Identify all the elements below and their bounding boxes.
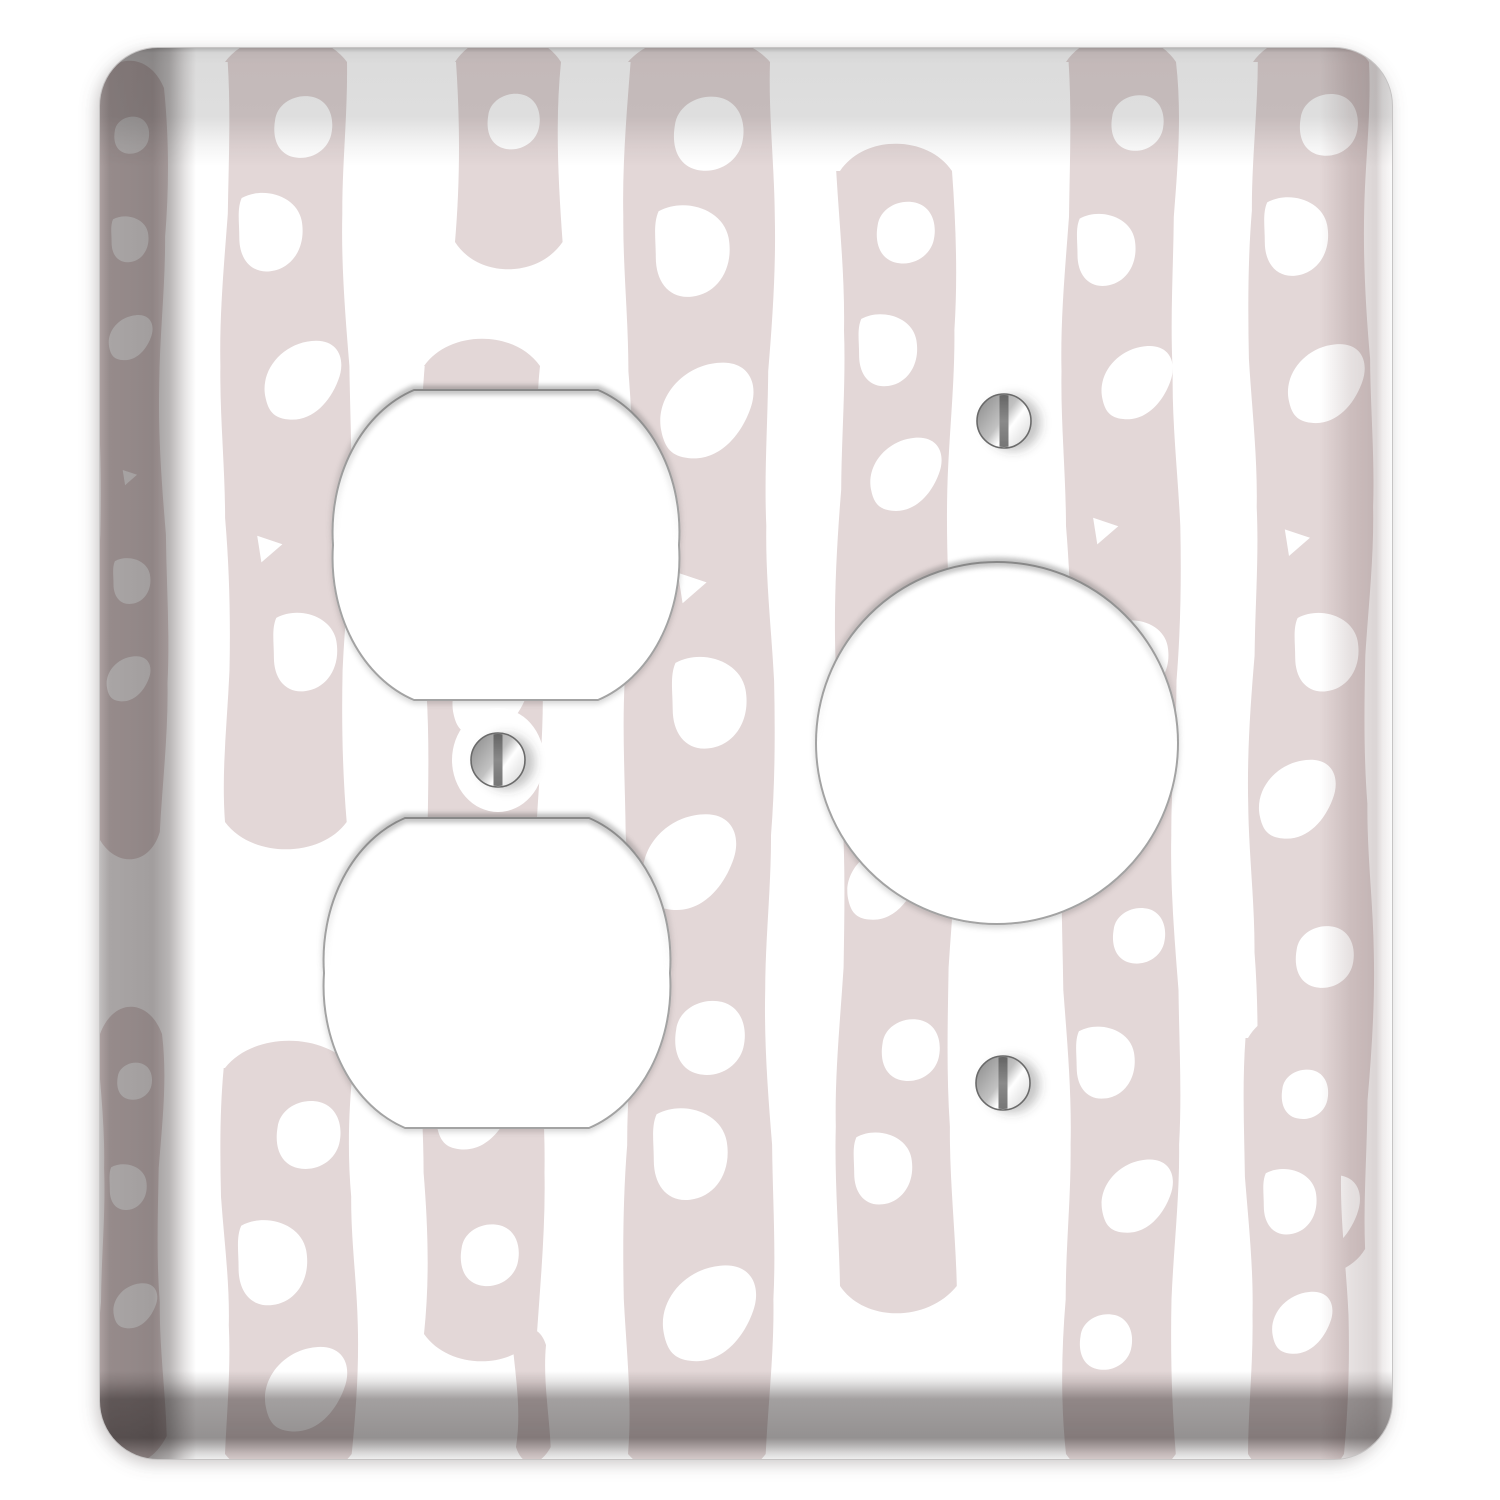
round-opening [816,562,1178,924]
duplex-opening [324,818,671,1128]
bevel-bottom-shading [100,1371,1392,1459]
product-photo [0,0,1500,1500]
pattern-stripe [623,35,775,1482]
screw-slot [1000,394,1009,448]
screw-slot [999,1056,1008,1110]
bevel-right-shading [1320,48,1392,1459]
wallplate [91,35,1392,1482]
screw-head [471,733,525,787]
wallplate-image [0,0,1500,1500]
plate-pattern-layer [91,35,1392,1482]
screw-head [977,394,1031,448]
bevel-left-shading [100,48,196,1459]
duplex-opening [333,390,680,700]
bevel-top-shading [100,48,1392,166]
screw-head [976,1056,1030,1110]
screw-slot [494,733,503,787]
